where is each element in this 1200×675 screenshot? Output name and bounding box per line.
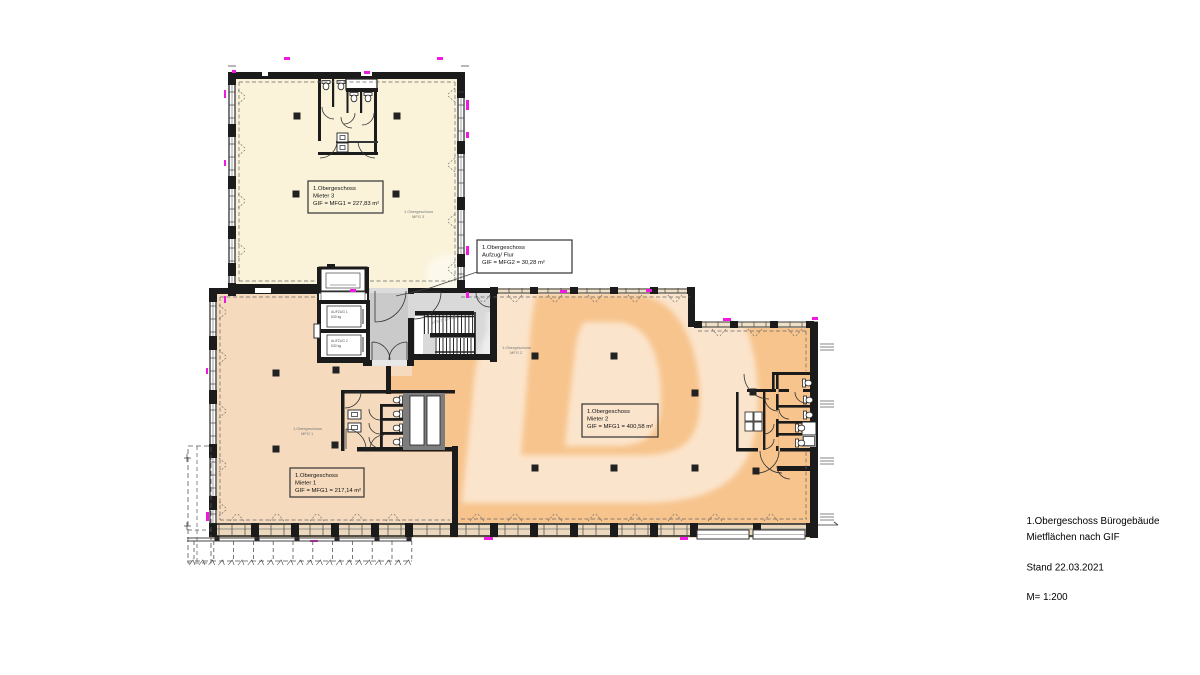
svg-text:Stand 22.03.2021: Stand 22.03.2021 <box>1027 563 1104 574</box>
svg-text:Mieter 2: Mieter 2 <box>587 417 608 423</box>
svg-text:Mietflächen nach GIF: Mietflächen nach GIF <box>1027 532 1120 543</box>
svg-text:1.Obergeschoss: 1.Obergeschoss <box>295 473 338 479</box>
svg-text:GIF = MFG1 = 217,14 m²: GIF = MFG1 = 217,14 m² <box>295 488 361 494</box>
svg-text:GIF = MFG1 = 400,58 m²: GIF = MFG1 = 400,58 m² <box>587 424 653 430</box>
svg-text:GIF = MFG2 = 30,28 m²: GIF = MFG2 = 30,28 m² <box>482 260 545 266</box>
svg-text:MFG 3: MFG 3 <box>412 214 425 219</box>
svg-text:Mieter 1: Mieter 1 <box>295 481 316 487</box>
svg-text:MFG 1: MFG 1 <box>301 431 314 436</box>
svg-text:1.Obergeschoss: 1.Obergeschoss <box>482 245 525 251</box>
svg-text:AUFZUG 2: AUFZUG 2 <box>331 339 348 343</box>
svg-text:Aufzug/ Flur: Aufzug/ Flur <box>482 253 514 259</box>
svg-text:MFG 2: MFG 2 <box>510 350 523 355</box>
svg-text:Mieter 3: Mieter 3 <box>313 194 335 200</box>
svg-text:1.Obergeschoss Bürogebäude: 1.Obergeschoss Bürogebäude <box>1027 516 1160 527</box>
svg-text:630 kg: 630 kg <box>331 315 341 319</box>
svg-text:GIF = MFG1 = 227,83 m²: GIF = MFG1 = 227,83 m² <box>313 201 379 207</box>
svg-text:630 kg: 630 kg <box>331 344 341 348</box>
svg-text:AUFZUG 1: AUFZUG 1 <box>331 310 348 314</box>
svg-text:M= 1:200: M= 1:200 <box>1027 592 1069 603</box>
svg-text:1.Obergeschoss: 1.Obergeschoss <box>313 186 356 192</box>
svg-text:1.Obergeschoss: 1.Obergeschoss <box>587 409 630 415</box>
